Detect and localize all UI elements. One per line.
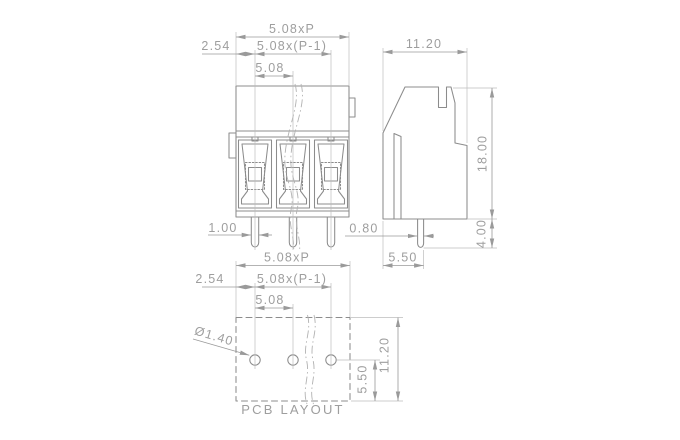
dim-text-pin-width: 1.00 bbox=[208, 221, 237, 235]
front-view: 5.08xP 2.54 5.08x(P-1) 5.08 1.00 bbox=[201, 22, 355, 252]
break-line bbox=[312, 315, 316, 404]
pcb-layout-view: 5.08xP 2.54 5.08x(P-1) 5.08 Ø1.40 11.20 … bbox=[193, 251, 403, 418]
dim-text-pcb-span: 5.08x(P-1) bbox=[257, 272, 327, 286]
dim-text-pcb-height: 11.20 bbox=[378, 337, 392, 373]
front-left-tab bbox=[229, 133, 236, 158]
dim-text-pin-offset: 5.50 bbox=[388, 251, 417, 265]
dim-text-pcb-hole-offset: 5.50 bbox=[356, 364, 370, 393]
break-line bbox=[305, 315, 309, 404]
dim-text-pin-thickness: 0.80 bbox=[349, 222, 378, 236]
drawing-canvas: 5.08xP 2.54 5.08x(P-1) 5.08 1.00 11.20 1… bbox=[0, 0, 680, 440]
dim-text-body-height: 18.00 bbox=[476, 135, 490, 172]
dim-text-body-width: 11.20 bbox=[406, 37, 442, 51]
dim-text-pcb-edge: 2.54 bbox=[195, 272, 224, 286]
side-view: 11.20 18.00 4.00 5.50 0.80 bbox=[345, 37, 497, 269]
dim-text-total-width: 5.08xP bbox=[269, 22, 315, 36]
pcb-layout-caption: PCB LAYOUT bbox=[241, 402, 344, 417]
dim-text-pitch: 5.08 bbox=[255, 61, 284, 75]
front-right-tab bbox=[349, 98, 355, 117]
dim-text-pcb-pitch: 5.08 bbox=[255, 293, 284, 307]
dim-text-pin-span: 5.08x(P-1) bbox=[257, 39, 327, 53]
technical-drawing-terminal-block: 5.08xP 2.54 5.08x(P-1) 5.08 1.00 11.20 1… bbox=[0, 0, 680, 440]
front-centerlines bbox=[255, 50, 331, 250]
front-body-split-lines bbox=[236, 131, 349, 211]
dim-text-edge: 2.54 bbox=[201, 39, 230, 53]
dim-text-pin-length: 4.00 bbox=[475, 219, 489, 248]
side-ext-width bbox=[383, 48, 467, 143]
side-groove bbox=[394, 134, 401, 220]
side-body-outline bbox=[383, 87, 467, 219]
side-pin bbox=[418, 219, 424, 247]
front-body-outline bbox=[236, 86, 349, 217]
dim-text-pcb-total: 5.08xP bbox=[264, 251, 310, 265]
